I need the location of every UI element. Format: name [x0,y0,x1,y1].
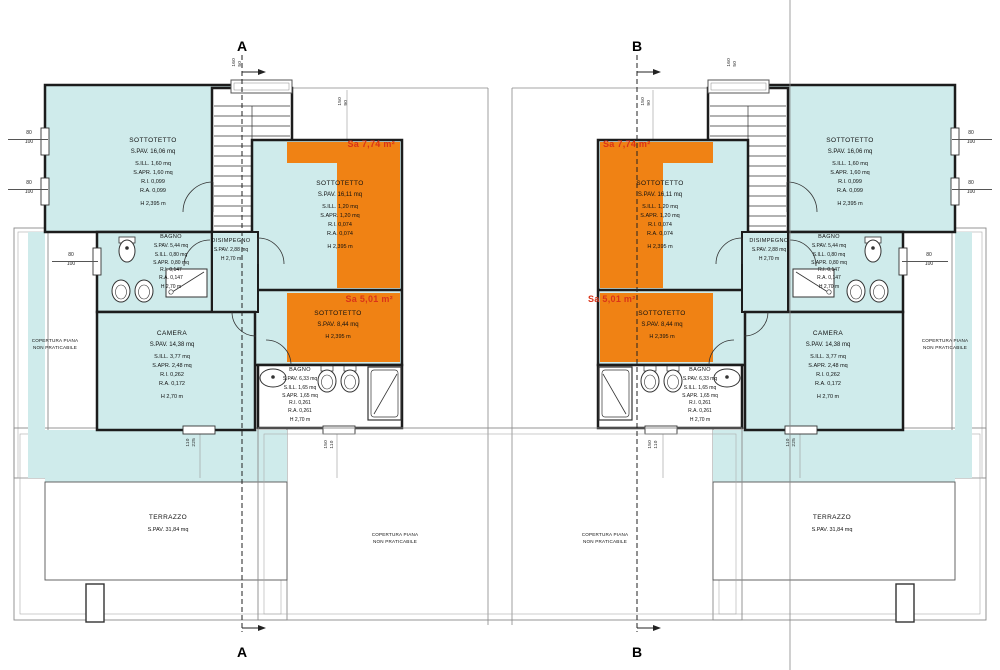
section-a-label-bottom: A [231,644,253,660]
dim-160-50-left: 16050 [232,58,243,67]
room-label-sottotetto-small-right: SOTTOTETTO S.PAV. 8,44 mq H 2,395 m [609,310,715,342]
room-label-terrazzo-right: TERRAZZO S.PAV. 31,84 mq [772,514,892,535]
dim-leader [52,261,98,262]
dim-leader [952,139,992,140]
copertura-note-center-left: COPERTURA PIANA NON PRATICABILE [345,532,445,545]
central-copertura-outline [258,428,742,620]
dim-80-100-right-1: 80100 [958,129,984,147]
dim-80-100-right-2: 80100 [958,179,984,197]
dim-110-225-right: 110225 [786,438,797,447]
dim-80-100-right-3: 80100 [916,251,942,269]
room-label-camera-right: CAMERA S.PAV. 14,38 mq S.ILL. 3,77 mq S.… [768,330,888,402]
room-label-terrazzo-left: TERRAZZO S.PAV. 31,84 mq [108,514,228,535]
room-label-sottotetto-small-left: SOTTOTETTO S.PAV. 8,44 mq H 2,395 m [285,310,391,342]
dim-150-90-right: 15090 [641,97,652,106]
section-b-label-top: B [626,38,648,54]
copertura-note-center-right: COPERTURA PIANA NON PRATICABILE [555,532,655,545]
section-a-label-top: A [231,38,253,54]
room-label-bagno-lower-left: BAGNO S.PAV. 6,33 mq S.ILL. 1,65 mq S.AP… [255,367,345,425]
copertura-note-left-edge: COPERTURA PIANA NON PRATICABILE [18,338,92,351]
copertura-note-right-edge: COPERTURA PIANA NON PRATICABILE [908,338,982,351]
room-label-disimpegno-right: DISIMPEGNO S.PAV. 2,88 mq H 2,70 m [724,238,814,264]
sa-label-small-left: Sa 5,01 m² [325,294,393,304]
dim-150-110-left: 150110 [324,440,335,449]
sa-label-large-left: Sa 7,74 m² [320,139,395,149]
dim-150-110-right: 150110 [648,440,659,449]
dim-160-50-right: 16050 [727,58,738,67]
sa-label-large-right: Sa 7,74 m² [603,139,678,149]
dim-leader [902,261,948,262]
room-label-sottotetto-large-right: SOTTOTETTO S.PAV. 16,06 mq S.ILL. 1,60 m… [792,137,908,209]
dim-150-90-left: 15090 [338,97,349,106]
dim-110-225-left: 110225 [186,438,197,447]
dim-leader [8,189,48,190]
dim-80-100-left-2: 80100 [16,179,42,197]
dim-80-100-left-3: 80100 [58,251,84,269]
sa-label-small-right: Sa 5,01 m² [588,294,656,304]
dim-leader [8,139,48,140]
dim-leader [952,189,992,190]
room-label-bagno-lower-right: BAGNO S.PAV. 6,33 mq S.ILL. 1,65 mq S.AP… [655,367,745,425]
room-label-sottotetto-center-left: SOTTOTETTO S.PAV. 16,11 mq S.ILL. 1,20 m… [282,180,398,252]
section-b-label-bottom: B [626,644,648,660]
room-label-sottotetto-center-right: SOTTOTETTO S.PAV. 16,11 mq S.ILL. 1,20 m… [602,180,718,252]
room-label-camera-left: CAMERA S.PAV. 14,38 mq S.ILL. 3,77 mq S.… [112,330,232,402]
dim-80-100-left-1: 80100 [16,129,42,147]
floor-plan-canvas: A A B B SOTTOTETTO S.PAV. 16,06 mq S.ILL… [0,0,1000,670]
room-label-disimpegno-left: DISIMPEGNO S.PAV. 2,88 mq H 2,70 m [186,238,276,264]
room-label-sottotetto-large-left: SOTTOTETTO S.PAV. 16,06 mq S.ILL. 1,60 m… [95,137,211,209]
